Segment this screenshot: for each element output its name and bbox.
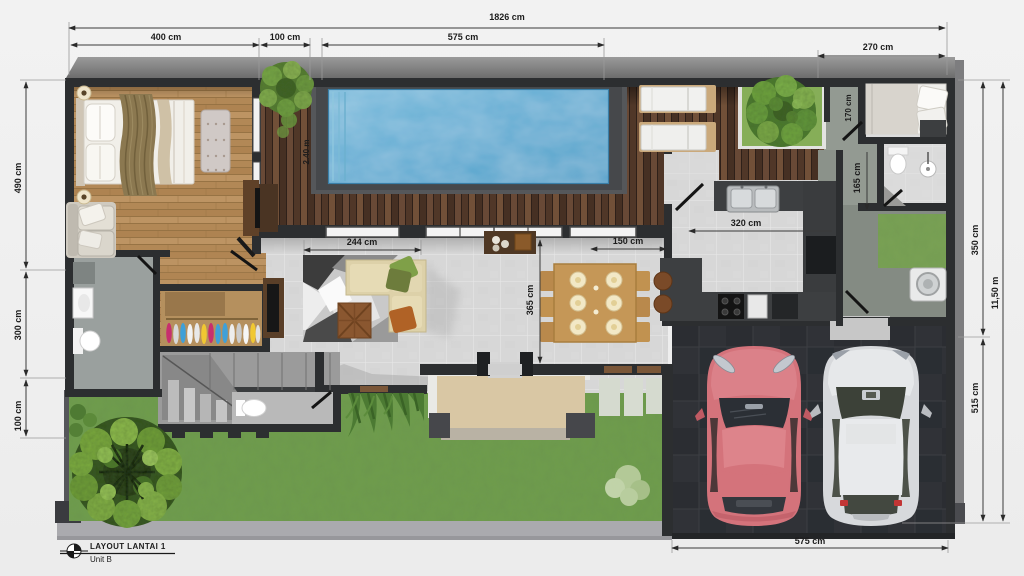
svg-text:150 cm: 150 cm	[613, 236, 644, 246]
svg-text:490 cm: 490 cm	[13, 163, 23, 194]
svg-text:244 cm: 244 cm	[347, 237, 378, 247]
svg-text:575 cm: 575 cm	[448, 32, 479, 42]
svg-text:515 cm: 515 cm	[970, 383, 980, 414]
svg-text:400 cm: 400 cm	[151, 32, 182, 42]
svg-text:LAYOUT LANTAI 1: LAYOUT LANTAI 1	[90, 542, 166, 551]
svg-text:170 cm: 170 cm	[844, 94, 853, 121]
svg-text:Unit B: Unit B	[90, 555, 112, 564]
svg-text:100 cm: 100 cm	[13, 401, 23, 432]
svg-text:350 cm: 350 cm	[970, 225, 980, 256]
svg-text:2.40 m: 2.40 m	[302, 140, 311, 165]
svg-text:1826 cm: 1826 cm	[489, 12, 525, 22]
svg-text:11,50 m: 11,50 m	[990, 277, 1000, 310]
svg-text:575 cm: 575 cm	[795, 536, 826, 546]
svg-text:365 cm: 365 cm	[525, 285, 535, 316]
svg-text:165 cm: 165 cm	[852, 163, 862, 194]
svg-text:270 cm: 270 cm	[863, 42, 894, 52]
svg-text:300 cm: 300 cm	[13, 310, 23, 341]
svg-text:100 cm: 100 cm	[270, 32, 301, 42]
svg-text:320 cm: 320 cm	[731, 218, 762, 228]
